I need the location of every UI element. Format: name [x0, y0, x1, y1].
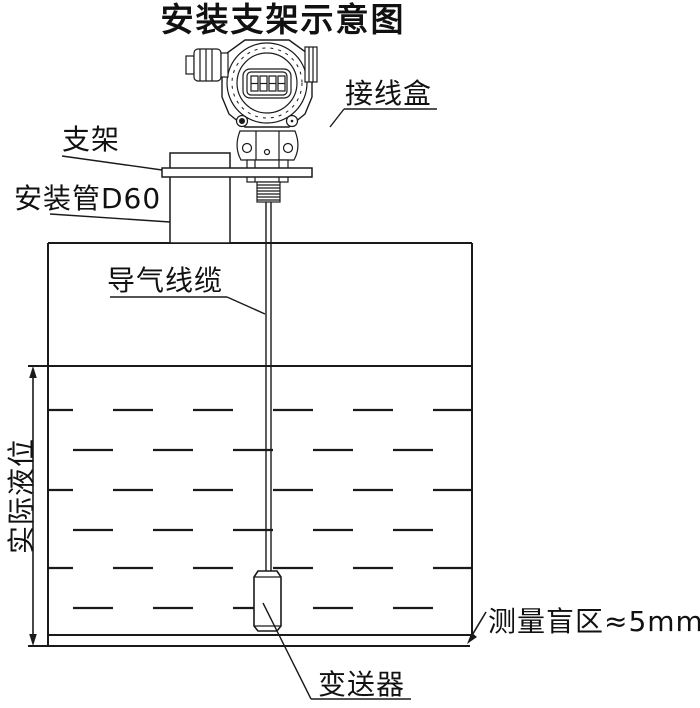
mounting-pipe-leader: [50, 214, 170, 222]
diagram-page: 实际液位 接线盒 支架 安装管D60 导气线缆 测量盲区≈5mm 变送器 安装支…: [0, 0, 700, 708]
gland-body: [194, 49, 221, 81]
air-cable: [266, 202, 271, 572]
transmitter-leader: [263, 603, 311, 699]
cable-gland-icon: [186, 49, 228, 81]
lcd-display: [243, 69, 291, 98]
actual-level-label: 实际液位: [5, 438, 38, 554]
threaded-nipple: [257, 182, 280, 202]
blind-zone-label: 测量盲区≈5mm: [488, 605, 700, 638]
yoke-right-hole: [284, 144, 293, 153]
tank: [28, 243, 472, 646]
actual-level-dimension: 实际液位: [5, 366, 38, 646]
gland-tip: [186, 56, 194, 74]
mounting-yoke: [237, 131, 298, 160]
air-cable-body: [266, 202, 271, 572]
side-cap-body: [305, 47, 317, 82]
air-cable-label: 导气线缆: [107, 264, 223, 297]
mounting-pipe-label: 安装管D60: [14, 182, 161, 215]
dimension-arrow-down-icon: [29, 634, 37, 646]
junction-box-label: 接线盒: [345, 77, 432, 110]
bracket-label: 支架: [62, 123, 120, 156]
junction-box-leader: [330, 109, 344, 127]
probe: [254, 571, 281, 631]
probe-body: [254, 571, 281, 631]
blind-zone-leader: [471, 612, 486, 637]
air-cable-leader: [227, 297, 265, 314]
side-cap-icon: [305, 47, 317, 82]
installation-diagram: 实际液位 接线盒 支架 安装管D60 导气线缆 测量盲区≈5mm 变送器 安装支…: [0, 0, 700, 708]
left-screw-dot: [239, 118, 245, 124]
gland-collar: [221, 53, 228, 77]
page-title: 安装支架示意图: [161, 0, 406, 39]
transmitter-label: 变送器: [318, 668, 405, 701]
mounting-pipe: [170, 153, 230, 243]
yoke-left-hole: [243, 144, 252, 153]
dimension-arrow-up-icon: [29, 366, 37, 378]
bracket-plate: [162, 168, 312, 177]
bracket-leader: [62, 156, 162, 170]
right-screw-dot: [291, 120, 294, 123]
yoke-center-hole: [265, 150, 270, 155]
callouts: 接线盒 支架 安装管D60 导气线缆 测量盲区≈5mm 变送器: [14, 77, 700, 701]
